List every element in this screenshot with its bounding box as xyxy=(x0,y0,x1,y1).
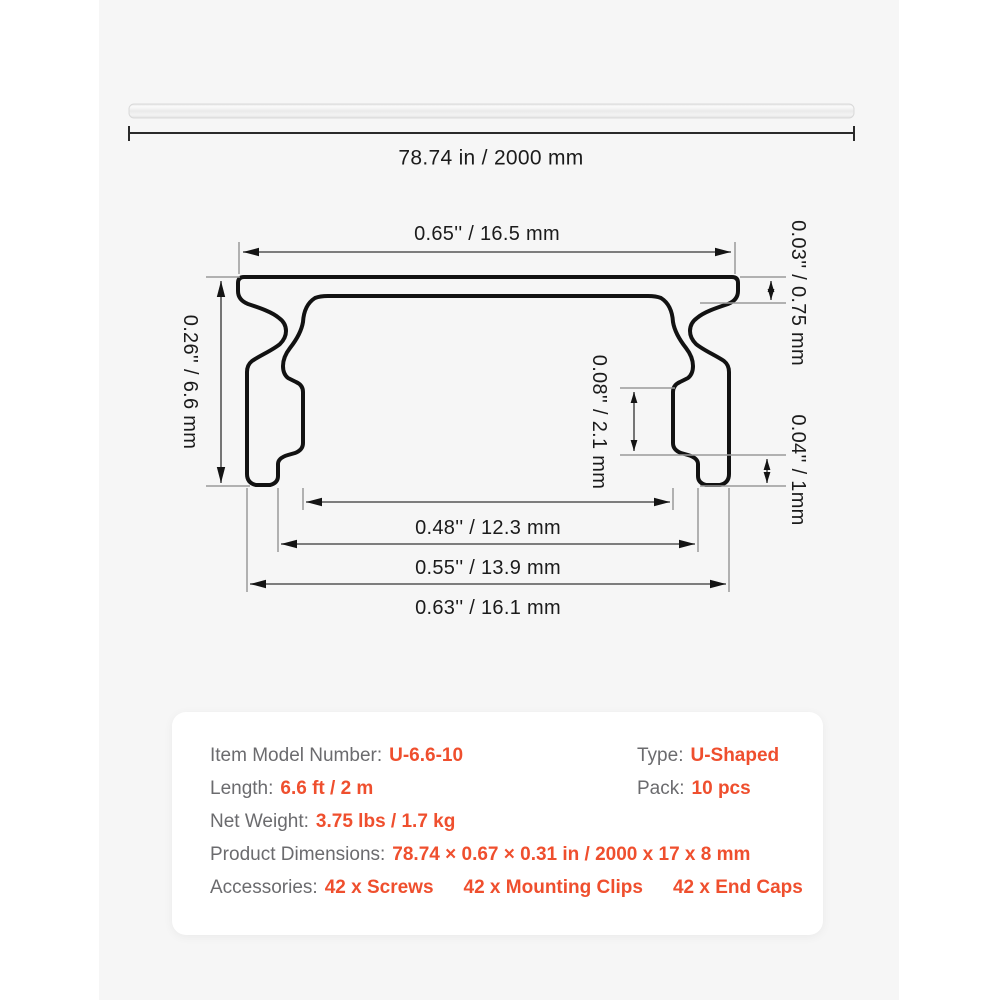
spec-row-type: Type:U-Shaped xyxy=(637,739,779,772)
spec-value-weight: 3.75 lbs / 1.7 kg xyxy=(316,811,455,832)
spec-value-accessory-clips: 42 x Mounting Clips xyxy=(464,877,643,898)
spec-value-dimensions: 78.74 × 0.67 × 0.31 in / 2000 x 17 x 8 m… xyxy=(392,844,750,865)
length-dim-label: 78.74 in / 2000 mm xyxy=(398,146,583,169)
spec-label-weight: Net Weight: xyxy=(210,811,309,832)
dim-label-outer-width: 0.63'' / 16.1 mm xyxy=(415,597,561,619)
dim-label-mid-width: 0.55'' / 13.9 mm xyxy=(415,557,561,579)
spec-row-pack: Pack:10 pcs xyxy=(637,772,779,805)
aluminum-bar xyxy=(129,104,854,118)
profile-cross-section xyxy=(238,277,738,485)
spec-row-weight: Net Weight:3.75 lbs / 1.7 kg xyxy=(210,805,803,838)
spec-row-dimensions: Product Dimensions:78.74 × 0.67 × 0.31 i… xyxy=(210,838,803,871)
spec-value-model: U-6.6-10 xyxy=(389,745,463,766)
dimension-labels: 0.65'' / 16.5 mm 0.26'' / 6.6 mm 0.03'' … xyxy=(179,220,809,619)
spec-label-type: Type: xyxy=(637,745,683,766)
dim-label-foot-height: 0.04'' / 1mm xyxy=(787,414,809,525)
spec-row-accessories: Accessories:42 x Screws42 x Mounting Cli… xyxy=(210,871,803,904)
dim-label-notch-height: 0.08'' / 2.1 mm xyxy=(588,355,610,489)
spec-value-pack: 10 pcs xyxy=(692,778,751,799)
spec-label-pack: Pack: xyxy=(637,778,685,799)
dim-label-left-height: 0.26'' / 6.6 mm xyxy=(179,315,201,449)
dim-label-top-width: 0.65'' / 16.5 mm xyxy=(414,223,560,245)
dim-label-inner-width: 0.48'' / 12.3 mm xyxy=(415,517,561,539)
spec-value-type: U-Shaped xyxy=(690,745,779,766)
spec-value-accessory-endcaps: 42 x End Caps xyxy=(673,877,803,898)
spec-label-dimensions: Product Dimensions: xyxy=(210,844,385,865)
spec-card: Item Model Number:U-6.6-10 Length:6.6 ft… xyxy=(172,712,823,935)
dim-label-top-thickness: 0.03'' / 0.75 mm xyxy=(787,220,809,366)
product-dimension-sheet: 78.74 in / 2000 mm xyxy=(0,0,1000,1000)
spec-card-right-column: Type:U-Shaped Pack:10 pcs xyxy=(637,739,779,805)
spec-label-length: Length: xyxy=(210,778,273,799)
spec-label-model: Item Model Number: xyxy=(210,745,382,766)
profile-outline xyxy=(238,277,738,485)
spec-value-length: 6.6 ft / 2 m xyxy=(280,778,373,799)
channel-length-bar: 78.74 in / 2000 mm xyxy=(129,104,854,169)
spec-value-accessory-screws: 42 x Screws xyxy=(325,877,434,898)
spec-label-accessories: Accessories: xyxy=(210,877,318,898)
